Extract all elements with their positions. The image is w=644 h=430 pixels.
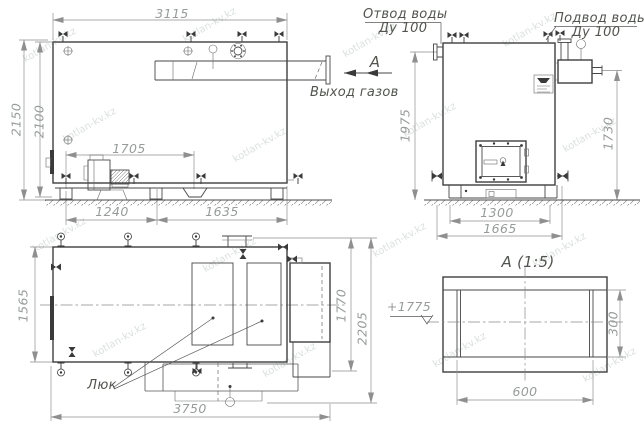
plan-view-linework bbox=[30, 233, 377, 421]
drawing-canvas bbox=[0, 0, 644, 430]
side-view-linework bbox=[19, 13, 392, 225]
detail-view-linework bbox=[390, 266, 626, 405]
front-view-linework bbox=[365, 23, 640, 241]
drawing-sheet: kotlan-kv.kz kotlan-kv.kz kotlan-kv.kz k… bbox=[0, 0, 644, 430]
